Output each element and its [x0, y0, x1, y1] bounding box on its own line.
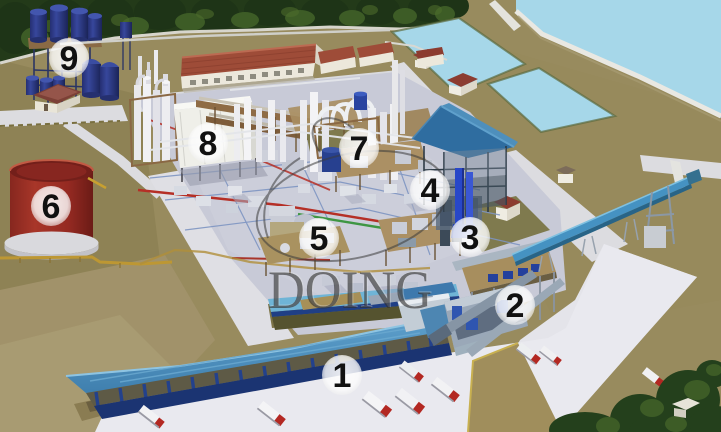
svg-text:8: 8 [199, 125, 218, 163]
svg-text:9: 9 [60, 40, 79, 78]
svg-text:3: 3 [461, 219, 480, 257]
svg-text:7: 7 [350, 130, 369, 168]
svg-text:DOING: DOING [268, 260, 432, 320]
svg-text:5: 5 [310, 220, 329, 258]
svg-text:6: 6 [42, 188, 61, 226]
svg-text:4: 4 [421, 172, 440, 210]
svg-text:1: 1 [333, 357, 352, 395]
svg-text:2: 2 [506, 287, 525, 325]
